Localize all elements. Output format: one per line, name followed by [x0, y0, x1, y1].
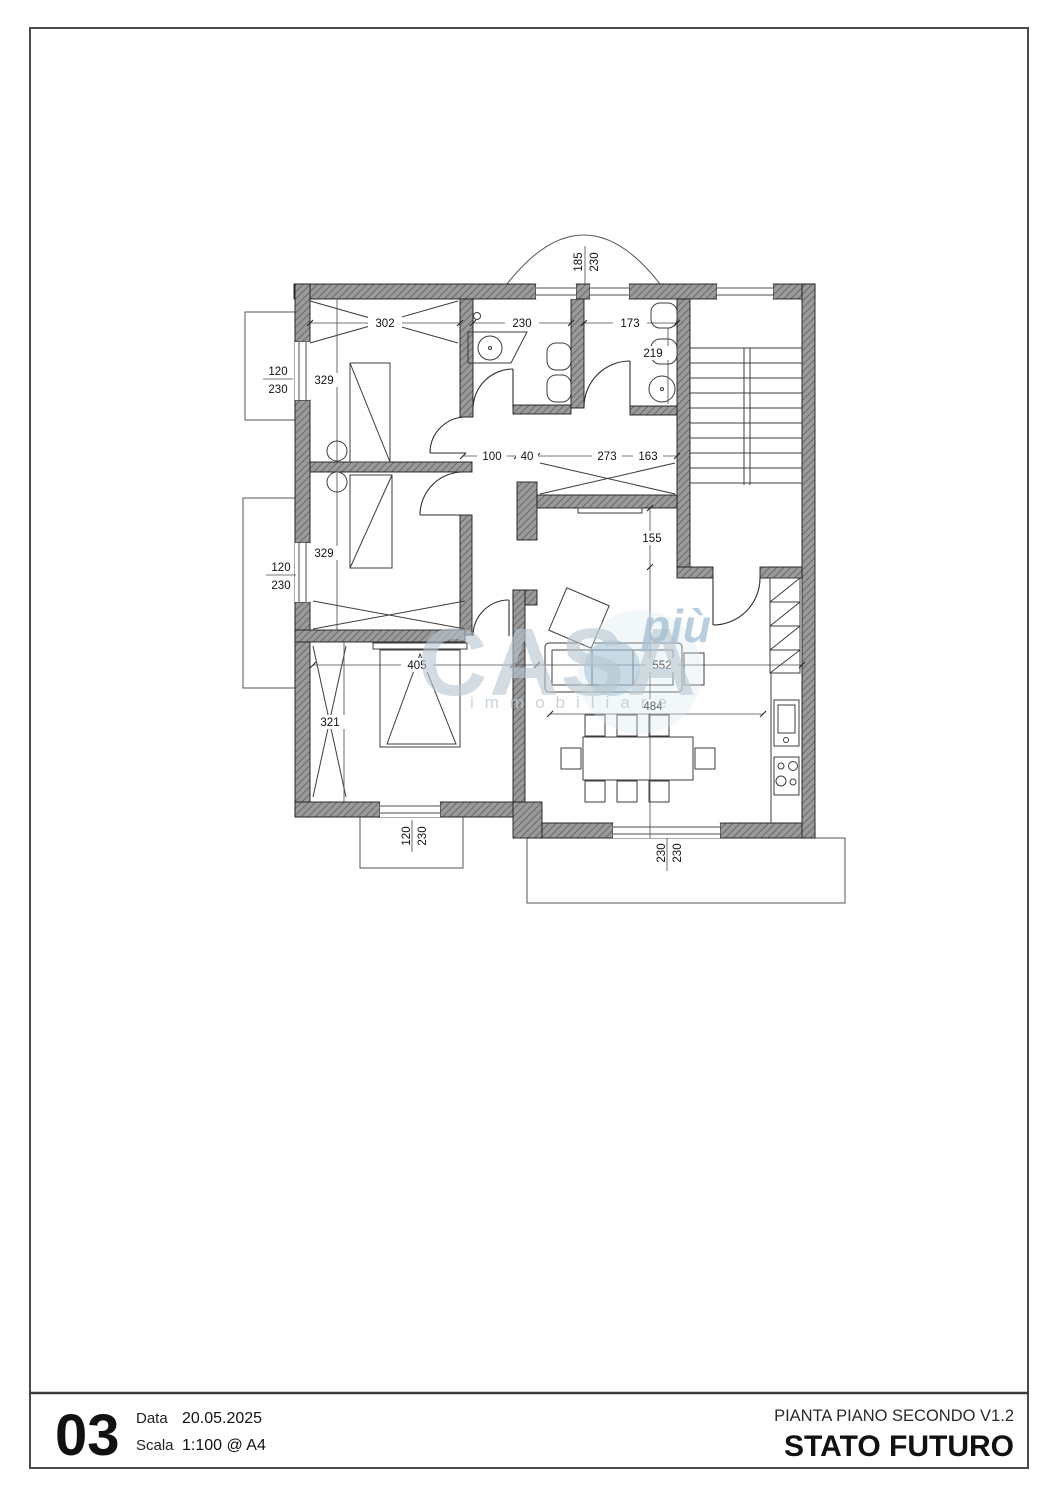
floor-plan: 302 230 173 219 185 230 120 230 329 120 …: [243, 235, 845, 903]
walls: [294, 284, 815, 838]
hob-icon: [774, 757, 799, 795]
wc-toilet-icon: [651, 303, 677, 328]
door-bedroom1: [430, 417, 466, 453]
drain-icon: [474, 313, 481, 320]
dimension-lines: [263, 246, 805, 871]
bed-icon-room2: [350, 475, 392, 568]
scale-label: Scala: [136, 1437, 174, 1454]
drawing-sheet: 302 230 173 219 185 230 120 230 329 120 …: [0, 0, 1060, 1500]
window-top-2: [590, 284, 629, 299]
door-wc: [584, 361, 630, 407]
door-entry: [713, 578, 760, 625]
stairs-icon: [690, 348, 802, 485]
chair-icon: [649, 781, 669, 802]
dim-label: 185: [573, 252, 585, 271]
dim-label: 120: [401, 826, 413, 845]
watermark-brand-suffix: più: [640, 600, 711, 652]
wardrobe-hall: [540, 463, 675, 494]
dim-label: 230: [417, 826, 429, 845]
wc-sink-icon: [649, 376, 675, 402]
dim-label: 219: [643, 348, 662, 360]
dim-label: 120: [271, 562, 290, 574]
door-bedroom2: [420, 472, 463, 515]
window-bottom-bedroom3: [380, 802, 440, 817]
dim-label: 273: [597, 451, 616, 463]
window-left-2: [295, 543, 310, 602]
shelf-hall: [578, 508, 642, 513]
title-block: 03 Data 20.05.2025 Scala 1:100 @ A4 PIAN…: [30, 1393, 1028, 1468]
date-label: Data: [136, 1410, 168, 1427]
dim-label: 173: [620, 318, 639, 330]
balcony-left-lower: [243, 498, 295, 688]
sink-icon: [478, 336, 502, 360]
window-top-1: [536, 284, 576, 299]
dim-label: 230: [268, 384, 287, 396]
dim-label: 120: [268, 366, 287, 378]
dining-table-icon: [583, 737, 693, 780]
chair-icon: [561, 748, 581, 769]
dim-label: 329: [314, 375, 333, 387]
chair-icon: [585, 781, 605, 802]
dim-label: 163: [638, 451, 657, 463]
scale-value: 1:100 @ A4: [182, 1437, 266, 1454]
chair-icon: [617, 781, 637, 802]
dim-label: 40: [521, 451, 534, 463]
kitchen: [770, 578, 800, 823]
dim-label: 230: [271, 580, 290, 592]
watermark: CASA più immobiliare: [418, 600, 711, 734]
terrace: [527, 838, 845, 903]
window-stairwell: [717, 284, 773, 299]
vanity-counter: [468, 332, 527, 363]
dim-label: 230: [512, 318, 531, 330]
drawing-title: PIANTA PIANO SECONDO V1.2: [774, 1407, 1014, 1425]
door-bathroom: [473, 369, 513, 409]
dim-label: 100: [482, 451, 501, 463]
window-living: [613, 823, 720, 838]
sheet-number: 03: [55, 1403, 120, 1468]
drawing-subtitle: STATO FUTURO: [784, 1430, 1014, 1463]
sheet-frame: [30, 28, 1028, 1468]
dim-label: 302: [375, 318, 394, 330]
bidet-icon: [547, 375, 571, 402]
dim-label: 230: [672, 843, 684, 862]
dim-label: 230: [589, 252, 601, 271]
watermark-tagline: immobiliare: [470, 693, 678, 712]
toilet-icon: [547, 343, 571, 370]
dim-label: 155: [642, 533, 661, 545]
dim-label: 321: [320, 717, 339, 729]
date-value: 20.05.2025: [182, 1410, 262, 1427]
bed-icon-room1: [350, 363, 390, 462]
dim-label: 230: [656, 843, 668, 862]
window-left-1: [295, 342, 310, 400]
chair-icon: [695, 748, 715, 769]
dim-label: 329: [314, 548, 333, 560]
